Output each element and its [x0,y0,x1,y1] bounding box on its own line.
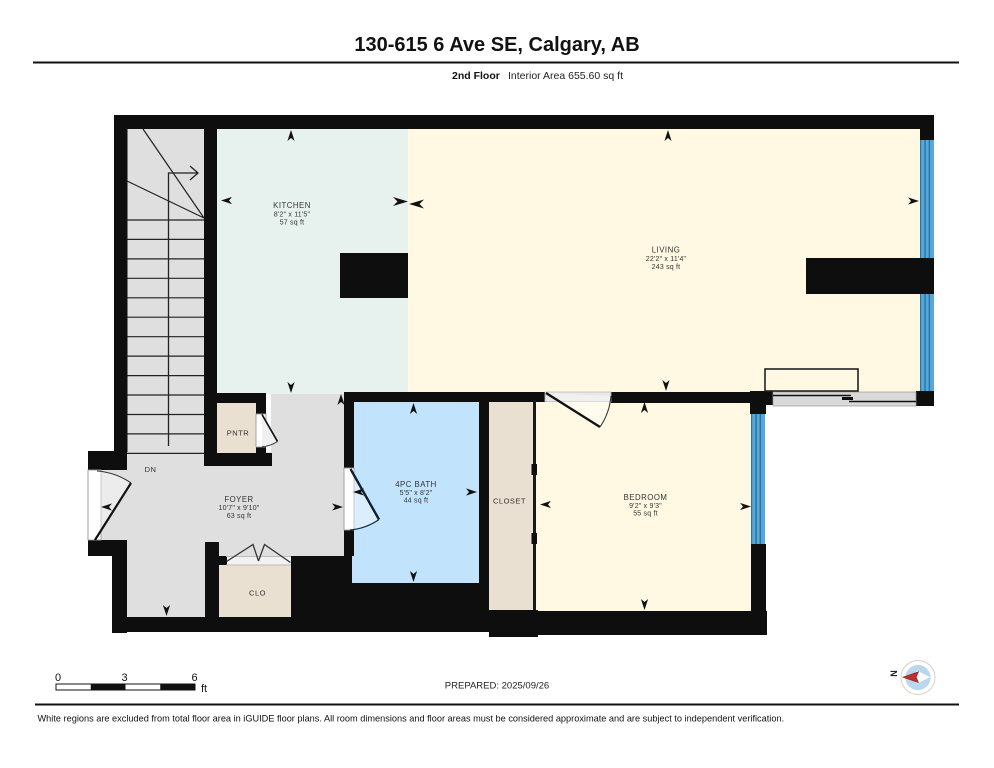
svg-text:22'2" x 11'4": 22'2" x 11'4" [646,256,687,263]
svg-text:BEDROOM: BEDROOM [624,493,668,502]
svg-text:55 sq ft: 55 sq ft [633,511,658,518]
svg-text:KITCHEN: KITCHEN [273,201,311,210]
svg-text:White regions are excluded fro: White regions are excluded from total fl… [38,714,785,724]
svg-text:243 sq ft: 243 sq ft [652,264,681,271]
svg-text:8'2" x 11'5": 8'2" x 11'5" [274,212,311,219]
svg-text:FOYER: FOYER [224,495,253,504]
svg-text:6: 6 [191,672,197,684]
svg-text:63 sq ft: 63 sq ft [227,513,252,520]
svg-text:10'7" x 9'10": 10'7" x 9'10" [219,505,260,512]
svg-text:130-615 6 Ave SE, Calgary, AB: 130-615 6 Ave SE, Calgary, AB [354,34,639,56]
svg-text:PREPARED: 2025/09/26: PREPARED: 2025/09/26 [445,681,549,692]
svg-text:5'5" x 8'2": 5'5" x 8'2" [400,490,433,497]
svg-text:LIVING: LIVING [652,246,681,255]
svg-text:Interior Area 655.60 sq ft: Interior Area 655.60 sq ft [508,70,623,82]
svg-text:N: N [889,670,899,677]
svg-text:44 sq ft: 44 sq ft [404,498,429,505]
svg-text:3: 3 [122,672,128,684]
svg-text:PNTR: PNTR [227,429,250,438]
svg-text:CLO: CLO [249,589,266,598]
svg-text:2nd Floor: 2nd Floor [452,70,500,82]
svg-text:DN: DN [145,465,157,474]
svg-text:57 sq ft: 57 sq ft [280,220,305,227]
svg-text:0: 0 [55,672,61,684]
svg-text:9'2" x 9'3": 9'2" x 9'3" [629,503,662,510]
svg-text:ft: ft [201,683,207,695]
svg-text:CLOSET: CLOSET [493,497,526,506]
svg-text:4PC BATH: 4PC BATH [395,480,437,489]
